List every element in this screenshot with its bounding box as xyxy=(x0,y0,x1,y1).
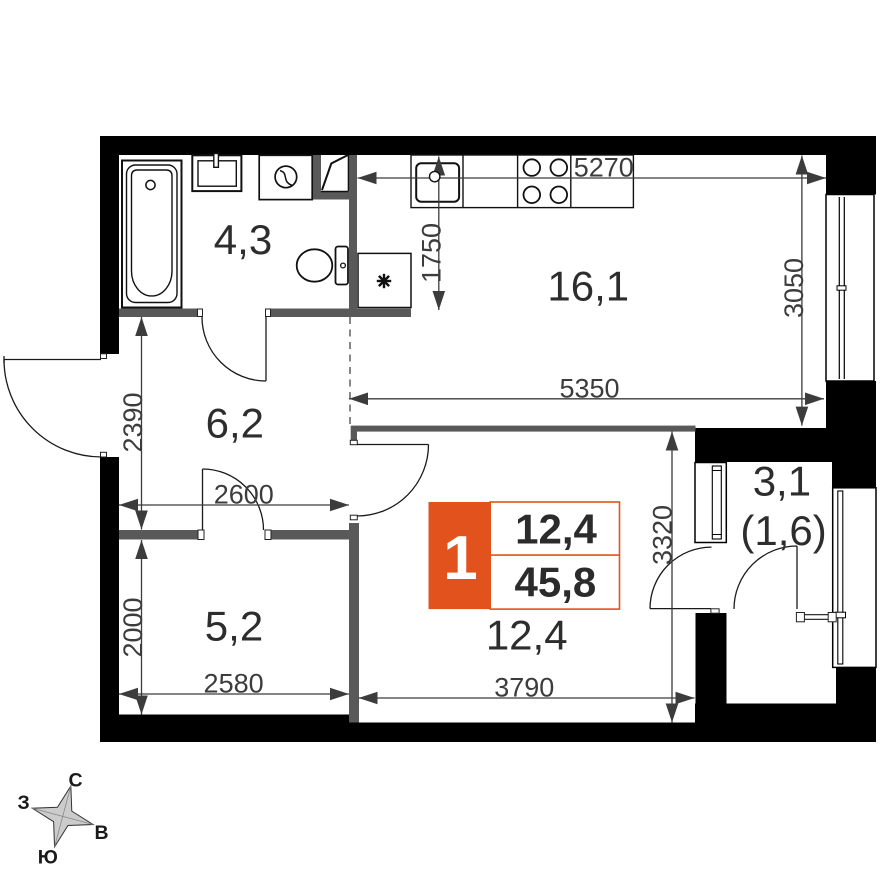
svg-text:5270: 5270 xyxy=(574,153,634,183)
svg-text:45,8: 45,8 xyxy=(515,559,597,606)
svg-text:3050: 3050 xyxy=(779,258,809,318)
svg-text:12,4: 12,4 xyxy=(515,506,597,553)
svg-text:З: З xyxy=(17,792,29,814)
svg-text:1: 1 xyxy=(443,524,477,593)
svg-text:12,4: 12,4 xyxy=(486,611,568,658)
svg-text:3,1: 3,1 xyxy=(753,457,811,504)
svg-text:С: С xyxy=(68,770,82,792)
svg-text:2390: 2390 xyxy=(118,392,148,452)
svg-text:4,3: 4,3 xyxy=(214,216,272,263)
svg-text:Ю: Ю xyxy=(38,847,58,869)
svg-text:2600: 2600 xyxy=(214,480,274,510)
svg-text:2000: 2000 xyxy=(118,597,148,657)
svg-text:1750: 1750 xyxy=(417,223,447,283)
svg-text:16,1: 16,1 xyxy=(547,263,629,310)
svg-text:3790: 3790 xyxy=(494,673,554,703)
svg-text:5350: 5350 xyxy=(559,373,619,403)
svg-text:5,2: 5,2 xyxy=(205,602,263,649)
svg-text:(1,6): (1,6) xyxy=(740,507,826,554)
svg-text:6,2: 6,2 xyxy=(206,400,264,447)
svg-text:2580: 2580 xyxy=(204,669,264,699)
svg-text:3320: 3320 xyxy=(648,505,678,565)
svg-text:В: В xyxy=(94,822,108,844)
